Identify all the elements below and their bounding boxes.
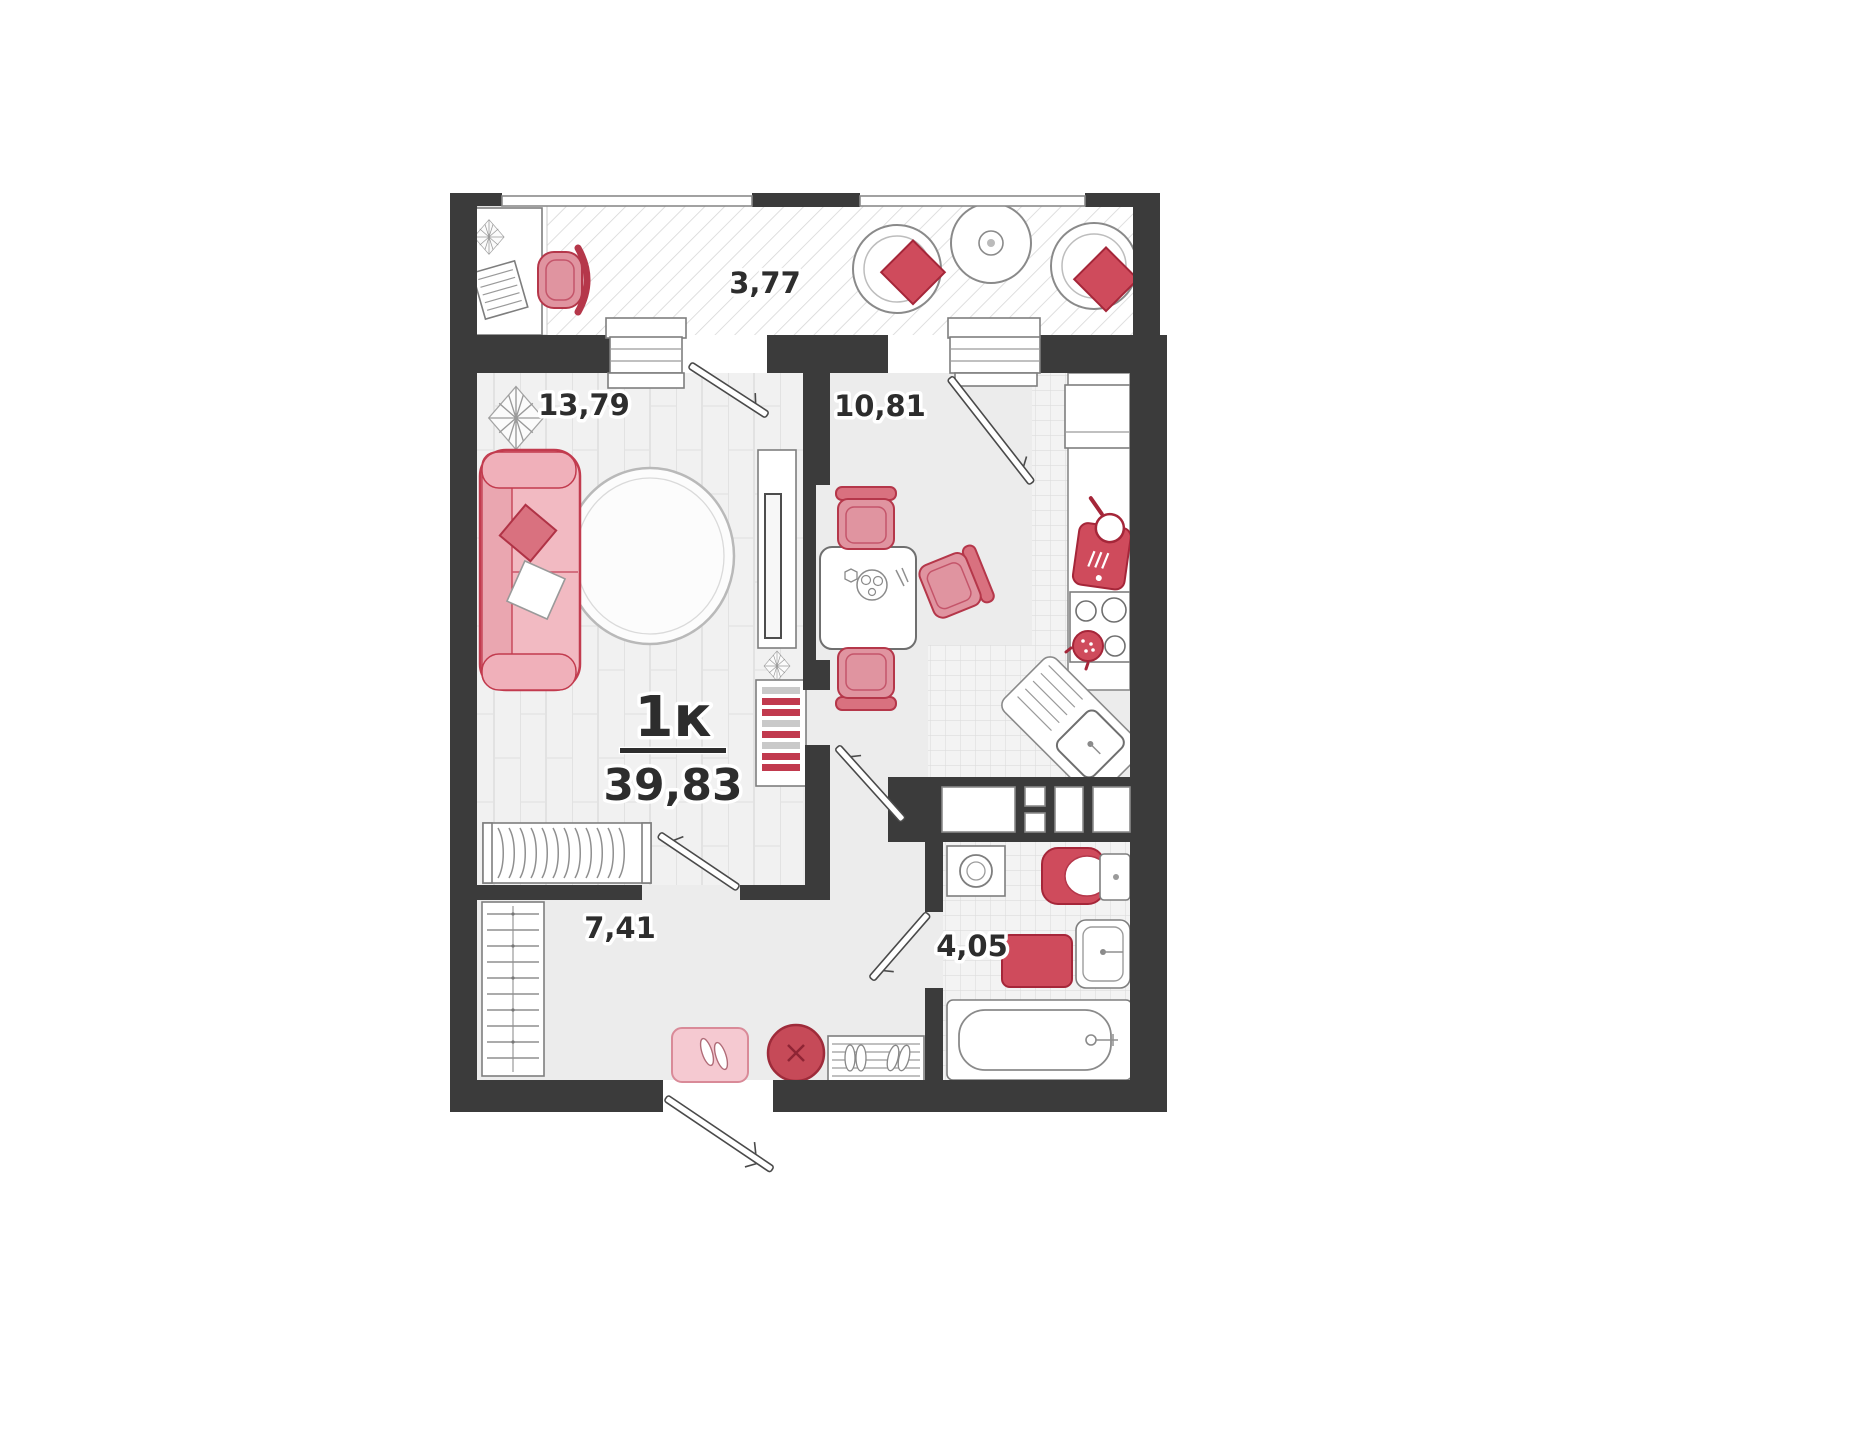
balcony-office-chair: [538, 248, 587, 312]
stove-icon: [1066, 592, 1130, 669]
total-area-label: 39,83: [603, 760, 742, 811]
bathroom-sink-icon: [1076, 920, 1130, 988]
kitchen-window: [948, 318, 1040, 386]
kitchen-table: [820, 547, 916, 649]
toilet-icon: [1042, 848, 1130, 904]
balcony-glazing-left: [502, 196, 752, 206]
hall-wardrobe: [482, 902, 544, 1076]
bath-mat: [1002, 935, 1072, 987]
balcony-glazing-right: [860, 196, 1085, 206]
shoe-rack: [828, 1036, 924, 1082]
kitchen-chair-bottom: [836, 648, 896, 710]
entrance-door: [659, 1087, 780, 1180]
shoe-mat: [672, 1028, 748, 1082]
balcony-round-table: [951, 203, 1031, 283]
bookshelf: [756, 680, 806, 786]
floorplan-page: 3,77 13,79 10,81 7,41 4,05 1к 39,83: [0, 0, 1854, 1434]
pouf-icon: [768, 1025, 824, 1081]
balcony-area-label: 3,77: [729, 266, 801, 300]
kitchen-area-label: 10,81: [834, 389, 926, 423]
kitchen-tile-strip: [1032, 373, 1068, 647]
clothes-rack: [483, 823, 651, 883]
title-divider: [620, 748, 726, 753]
hallway-area-label: 7,41: [584, 911, 656, 945]
floorplan-drawing: 3,77 13,79 10,81 7,41 4,05 1к 39,83: [0, 0, 1854, 1434]
washing-machine-icon: [947, 846, 1005, 896]
living-window: [606, 318, 686, 388]
apartment-type-label: 1к: [635, 685, 712, 750]
tv-icon: [765, 494, 781, 638]
tv-stand: [758, 450, 796, 648]
bathtub-icon: [947, 1000, 1132, 1080]
sofa: [480, 450, 580, 690]
round-rug: [566, 468, 734, 644]
fridge-icon: [1065, 385, 1130, 448]
living-area-label: 13,79: [538, 388, 630, 422]
kitchen-chair-top: [836, 487, 896, 549]
bathroom-area-label: 4,05: [936, 929, 1008, 963]
balcony-desk: [470, 208, 542, 335]
